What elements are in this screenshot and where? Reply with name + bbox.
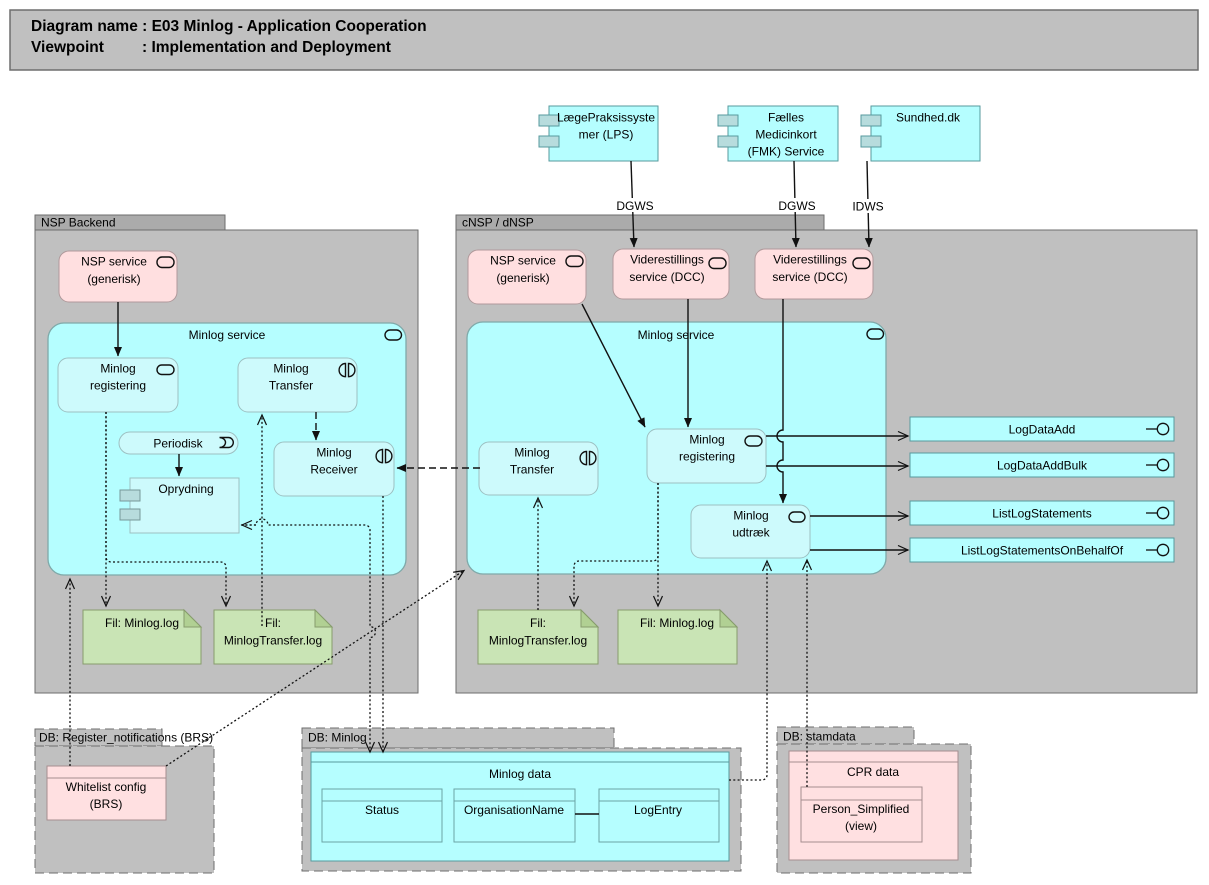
svg-text:Minlog data: Minlog data — [489, 767, 551, 781]
svg-text:(FMK) Service: (FMK) Service — [748, 145, 825, 159]
svg-text:LogDataAdd: LogDataAdd — [1009, 423, 1076, 437]
svg-text:MinlogTransfer.log: MinlogTransfer.log — [224, 634, 322, 648]
svg-text:(view): (view) — [845, 819, 877, 833]
svg-text:(BRS): (BRS) — [90, 797, 123, 811]
svg-text:registering: registering — [90, 379, 146, 393]
svg-text:CPR data: CPR data — [847, 765, 899, 779]
svg-text:Viewpoint: Viewpoint — [31, 39, 104, 56]
svg-text:Fil: Minlog.log: Fil: Minlog.log — [640, 616, 714, 630]
svg-text:Minlog: Minlog — [100, 362, 135, 376]
svg-text:: Implementation and Deploymen: : Implementation and Deployment — [142, 39, 391, 56]
svg-text:Person_Simplified: Person_Simplified — [813, 802, 910, 816]
svg-text:MinlogTransfer.log: MinlogTransfer.log — [489, 634, 587, 648]
svg-text:Fil:: Fil: — [265, 616, 281, 630]
svg-text:Receiver: Receiver — [310, 463, 357, 477]
svg-text:ListLogStatementsOnBehalfOf: ListLogStatementsOnBehalfOf — [961, 544, 1124, 558]
svg-text:DB: Minlog: DB: Minlog — [308, 731, 367, 745]
svg-text:Fælles: Fælles — [768, 111, 804, 125]
svg-text:Oprydning: Oprydning — [158, 482, 213, 496]
svg-text:Transfer: Transfer — [269, 379, 313, 393]
svg-text:Periodisk: Periodisk — [153, 437, 203, 451]
svg-text:LogDataAddBulk: LogDataAddBulk — [997, 459, 1088, 473]
svg-text:Viderestillings: Viderestillings — [630, 253, 704, 267]
svg-text:DB: stamdata: DB: stamdata — [783, 730, 856, 744]
svg-text:udtræk: udtræk — [732, 526, 770, 540]
svg-text:(generisk): (generisk) — [87, 272, 140, 286]
svg-text:Minlog: Minlog — [733, 509, 768, 523]
svg-text:Status: Status — [365, 803, 399, 817]
svg-text:Medicinkort: Medicinkort — [755, 128, 817, 142]
svg-text:Minlog service: Minlog service — [189, 328, 266, 342]
svg-text:Minlog: Minlog — [273, 362, 308, 376]
svg-text:Diagram name : E03 Minlog - Ap: Diagram name : E03 Minlog - Application … — [31, 18, 427, 35]
svg-text:Minlog service: Minlog service — [638, 328, 715, 342]
svg-text:Transfer: Transfer — [510, 463, 554, 477]
svg-text:service (DCC): service (DCC) — [772, 270, 847, 284]
svg-text:OrganisationName: OrganisationName — [464, 803, 564, 817]
svg-text:ListLogStatements: ListLogStatements — [992, 507, 1091, 521]
svg-text:cNSP / dNSP: cNSP / dNSP — [462, 216, 534, 230]
svg-text:Whitelist config: Whitelist config — [66, 780, 147, 794]
svg-text:NSP service: NSP service — [81, 255, 147, 269]
svg-text:LægePraksissyste: LægePraksissyste — [557, 111, 655, 125]
svg-text:Fil: Minlog.log: Fil: Minlog.log — [105, 616, 179, 630]
svg-text:NSP service: NSP service — [490, 254, 556, 268]
svg-text:Fil:: Fil: — [530, 616, 546, 630]
svg-text:Minlog: Minlog — [316, 446, 351, 460]
svg-text:Viderestillings: Viderestillings — [773, 253, 847, 267]
svg-text:NSP Backend: NSP Backend — [41, 216, 116, 230]
svg-text:Minlog: Minlog — [689, 433, 724, 447]
svg-text:service (DCC): service (DCC) — [629, 270, 704, 284]
svg-text:IDWS: IDWS — [852, 200, 883, 214]
svg-text:DB: Register_notifications (BR: DB: Register_notifications (BRS) — [39, 731, 213, 745]
svg-text:mer (LPS): mer (LPS) — [579, 128, 634, 142]
svg-text:Minlog: Minlog — [514, 446, 549, 460]
svg-text:DGWS: DGWS — [778, 199, 815, 213]
svg-text:Sundhed.dk: Sundhed.dk — [896, 111, 961, 125]
svg-text:(generisk): (generisk) — [496, 271, 549, 285]
svg-text:DGWS: DGWS — [616, 199, 653, 213]
svg-text:registering: registering — [679, 450, 735, 464]
svg-text:LogEntry: LogEntry — [634, 803, 682, 817]
